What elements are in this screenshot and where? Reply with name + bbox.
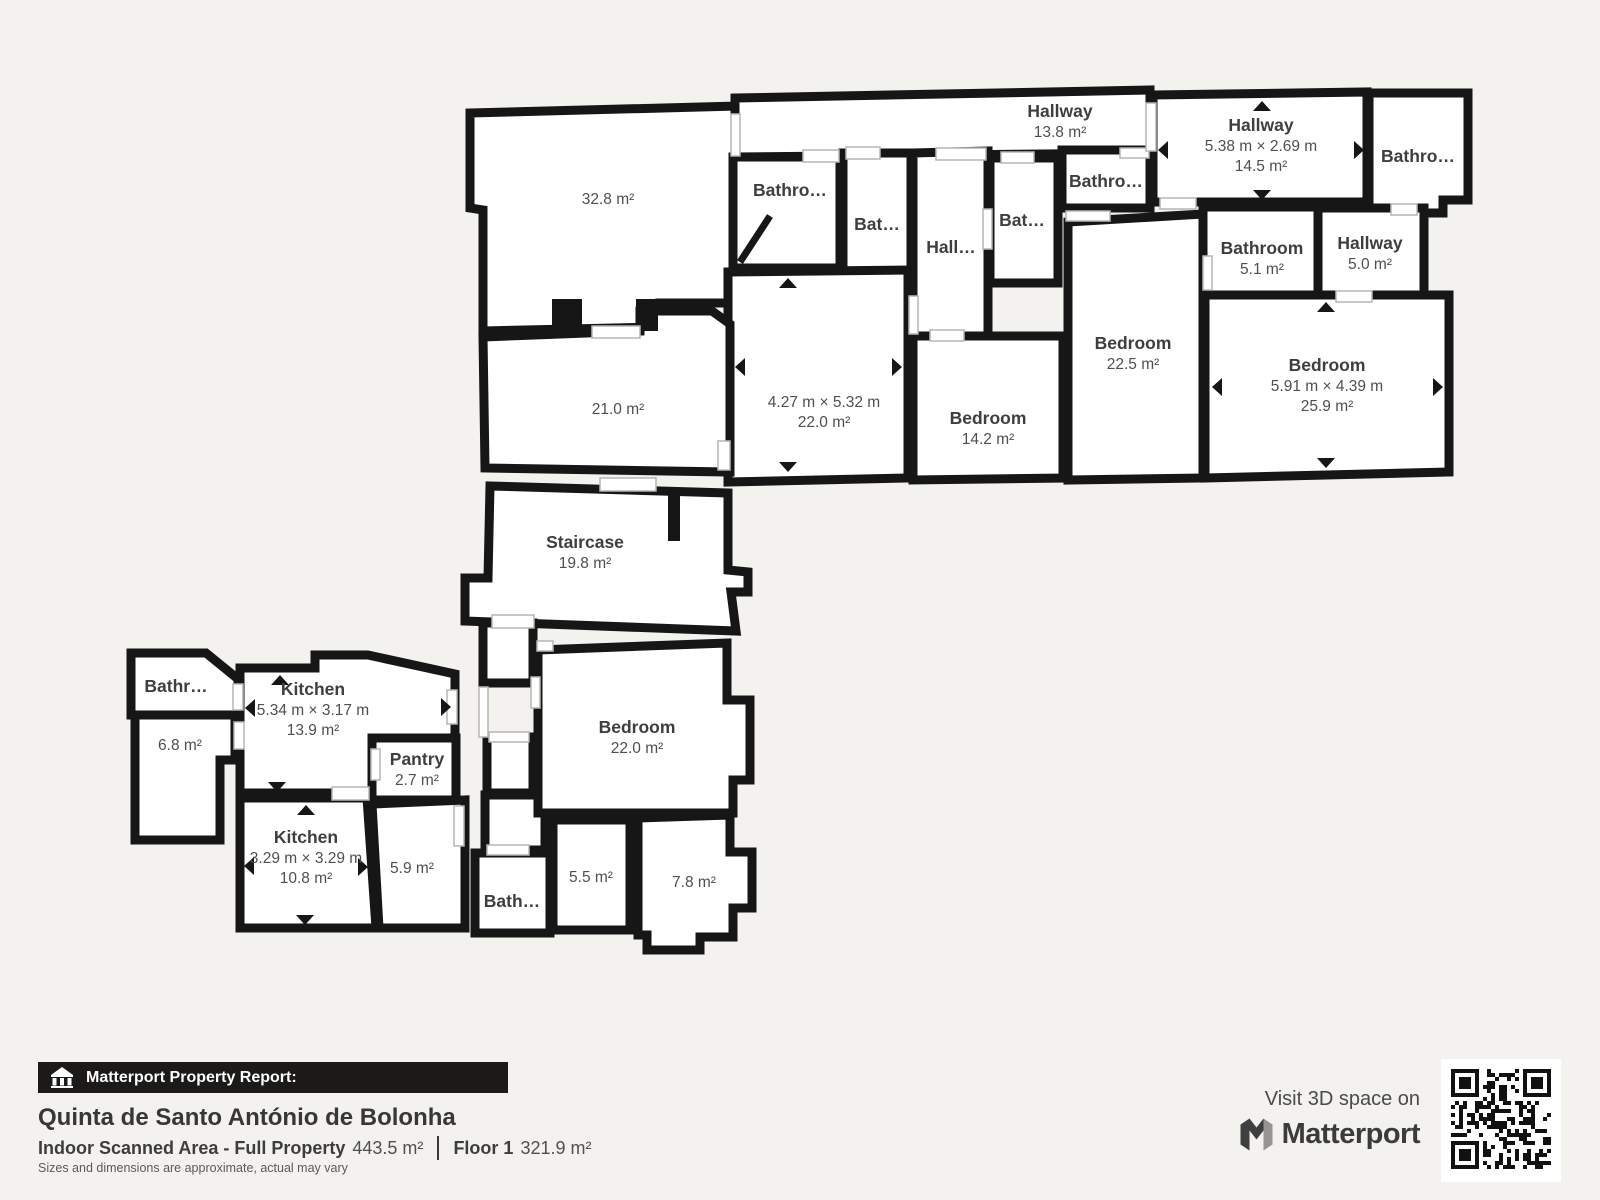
room-label-kitchen-10-8: 3.29 m × 3.29 m (250, 850, 362, 867)
room-label-hallway-14-5: 14.5 m² (1235, 158, 1288, 175)
door-opening (1160, 198, 1196, 209)
room-label-bedroom-22-5: Bedroom (1095, 333, 1172, 353)
door-opening (492, 615, 534, 628)
room-label-bedroom-14-2: Bedroom (950, 408, 1027, 428)
room-label-kitchen-13-9: 5.34 m × 3.17 m (257, 702, 369, 719)
matterport-logo-icon (1240, 1117, 1273, 1152)
floor-value: 321.9 m² (520, 1138, 591, 1159)
door-opening (234, 722, 244, 749)
room-label-bathroom-5-1: Bathroom (1221, 238, 1304, 258)
door-opening (1066, 211, 1110, 221)
floor-plan: 32.8 m²Hallway13.8 m²Bathro…Bat…Hall…Bat… (0, 0, 1600, 1200)
room-label-room-5-9: 5.9 m² (390, 860, 434, 877)
room-label-pantry: Pantry (390, 749, 445, 769)
room-label-hallway-13-8: 13.8 m² (1034, 124, 1087, 141)
door-opening (489, 732, 529, 742)
room-label-bathroom-5-1: 5.1 m² (1240, 261, 1284, 278)
room-label-kitchen-10-8: Kitchen (274, 827, 338, 847)
room-label-bedroom-25-9: Bedroom (1289, 355, 1366, 375)
matterport-floorplan-report: 32.8 m²Hallway13.8 m²Bathro…Bat…Hall…Bat… (0, 0, 1600, 1200)
door-opening (479, 687, 488, 737)
door-opening (909, 296, 918, 334)
room-pantry (372, 738, 456, 800)
room-label-bedroom-25-9: 25.9 m² (1301, 398, 1354, 415)
room-label-room-7-8: 7.8 m² (672, 874, 716, 891)
room-label-room-32-8: 32.8 m² (582, 191, 635, 208)
room-label-room-21-0: 21.0 m² (592, 401, 645, 418)
door-opening (371, 749, 380, 780)
room-label-hallway-14-5: 5.38 m × 2.69 m (1205, 138, 1317, 155)
room-label-room-dim-22-0: 4.27 m × 5.32 m (768, 394, 880, 411)
room-label-hallway-5-0: Hallway (1337, 233, 1402, 253)
door-opening (1391, 204, 1417, 215)
room-label-bedroom-22-5: 22.5 m² (1107, 356, 1160, 373)
floor-label: Floor 1 (453, 1138, 513, 1159)
room-label-kitchen-10-8: 10.8 m² (280, 870, 333, 887)
door-opening (936, 148, 986, 160)
room-label-room-6-8: 6.8 m² (158, 737, 202, 754)
door-opening (487, 845, 529, 855)
room-vestibule-b (487, 737, 533, 793)
room-label-hall-corridor: Hall… (926, 237, 976, 257)
room-vestibule-a (483, 623, 533, 683)
door-opening (1203, 256, 1212, 290)
room-label-kitchen-13-9: 13.9 m² (287, 722, 340, 739)
scanned-area-label: Indoor Scanned Area - Full Property (38, 1138, 345, 1159)
door-opening (537, 641, 553, 651)
room-label-bathroom-top-right: Bathro… (1381, 146, 1455, 166)
door-opening (531, 677, 540, 708)
scanned-area-value: 443.5 m² (352, 1138, 423, 1159)
report-header-bar: Matterport Property Report: (38, 1062, 508, 1093)
door-opening (454, 806, 464, 846)
building-icon (50, 1067, 74, 1088)
door-opening (930, 330, 964, 341)
room-label-room-5-5: 5.5 m² (569, 869, 613, 886)
area-summary: Indoor Scanned Area - Full Property 443.… (38, 1136, 592, 1160)
room-label-room-dim-22-0: 22.0 m² (798, 414, 851, 431)
door-opening (600, 478, 656, 491)
room-label-hallway-13-8: Hallway (1027, 101, 1092, 121)
door-opening (332, 787, 369, 800)
door-opening (1120, 148, 1149, 158)
room-label-hallway-14-5: Hallway (1228, 115, 1293, 135)
matterport-wordmark[interactable]: Matterport (1282, 1118, 1420, 1151)
qr-code (1441, 1059, 1561, 1182)
door-opening (983, 209, 992, 249)
room-room-32-8 (470, 106, 738, 331)
room-label-hallway-5-0: 5.0 m² (1348, 256, 1392, 273)
room-label-kitchen-13-9: Kitchen (281, 679, 345, 699)
door-opening (233, 684, 243, 710)
room-label-bedroom-14-2: 14.2 m² (962, 431, 1015, 448)
door-opening (1336, 291, 1372, 302)
room-label-bedroom-25-9: 5.91 m × 4.39 m (1271, 378, 1383, 395)
room-label-staircase: Staircase (546, 532, 624, 552)
room-label-staircase: 19.8 m² (559, 555, 612, 572)
door-opening (718, 441, 730, 470)
room-label-bedroom-22-0: Bedroom (599, 717, 676, 737)
room-label-bathroom-top-d: Bathro… (1069, 171, 1143, 191)
room-label-bathroom-top-a: Bathro… (753, 180, 827, 200)
room-label-bathroom-top-c: Bat… (999, 210, 1045, 230)
door-opening (803, 150, 839, 162)
disclaimer-note: Sizes and dimensions are approximate, ac… (38, 1161, 348, 1175)
property-title: Quinta de Santo António de Bolonha (38, 1104, 456, 1132)
room-label-bathroom-bottom: Bath… (484, 891, 540, 911)
room-room-6-8 (135, 715, 235, 840)
wall-stub (668, 493, 680, 541)
room-label-pantry: 2.7 m² (395, 772, 439, 789)
room-label-bathroom-small-left: Bathr… (144, 676, 207, 696)
visit-3d-label[interactable]: Visit 3D space on (1130, 1088, 1420, 1111)
door-opening (1146, 103, 1156, 151)
door-opening (846, 147, 880, 159)
room-label-bedroom-22-0: 22.0 m² (611, 740, 664, 757)
report-bar-label: Matterport Property Report: (86, 1069, 297, 1087)
visit-3d-link[interactable]: Visit 3D space on Matterport (1130, 1088, 1420, 1152)
divider (437, 1136, 439, 1160)
door-opening (592, 326, 640, 338)
door-opening (731, 114, 740, 156)
room-label-bathroom-top-b: Bat… (854, 214, 900, 234)
wall-stub (552, 299, 582, 333)
room-room-dim-22-0 (728, 270, 908, 482)
door-opening (1001, 152, 1034, 163)
